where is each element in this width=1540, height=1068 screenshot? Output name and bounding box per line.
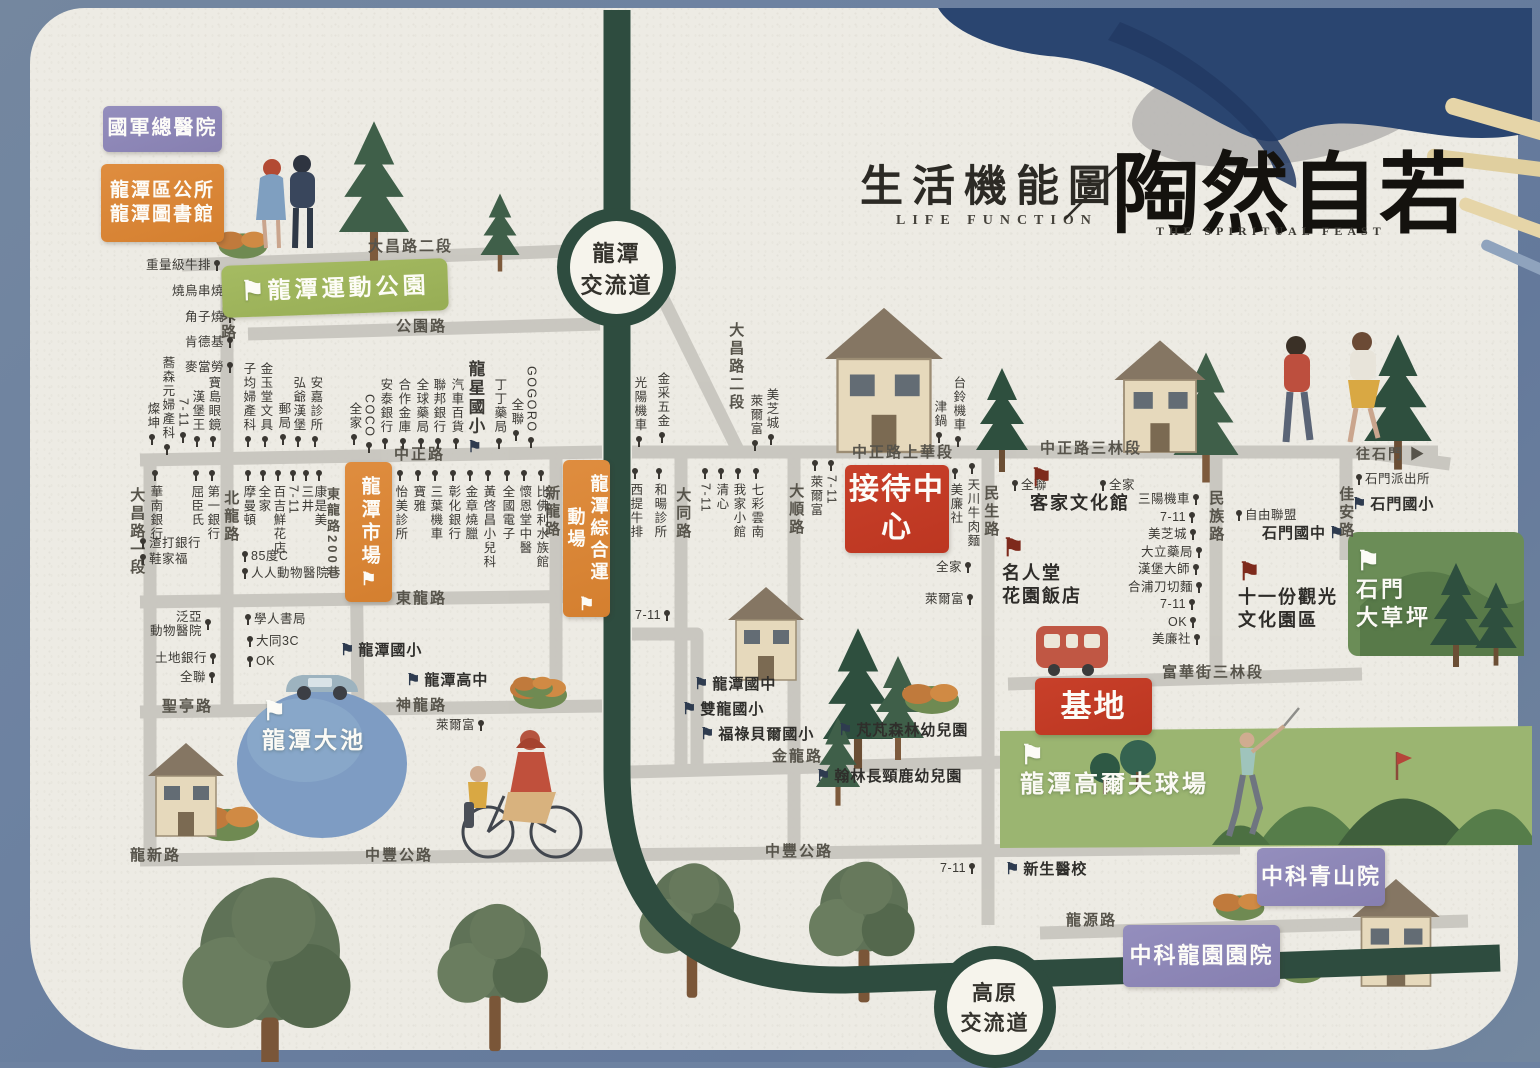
pin-icon [152,470,158,476]
poi-label: OK [1168,615,1196,629]
label-text: 7-11 [698,483,712,513]
label-text: OK [256,654,275,668]
label-text: 漢堡大師 [1138,562,1190,576]
landmark-shiyifen-culture-park: ⚑十一份觀光文化園區 [1238,560,1338,633]
flag-icon: ⚑ [1020,742,1047,769]
label-text: 肯德基 [185,335,224,349]
poi-label: 渣打銀行 [140,536,201,550]
label-text: 美廉社 [1152,632,1191,646]
label-text: 龍潭高中 [424,672,488,689]
poi-label: 汽車百貨 [449,378,463,449]
area-zhongke-longyuan: 中科龍園園院 [1123,925,1280,987]
pin-icon [351,434,357,440]
label-text: 民族路 [1207,490,1224,544]
label-text: 新生醫校 [1023,861,1087,878]
poi-label: 全家 [347,402,361,445]
label-text: 麥當勞 [185,360,224,374]
pin-icon [210,436,216,442]
pin-icon [214,260,220,266]
poi-label: 我家小館 [731,468,745,539]
label-text: 石門國中 [1262,525,1326,542]
label-text: 泛亞動物醫院 [150,610,202,639]
pin-icon [1189,512,1195,518]
label-text: 北龍路 [222,490,239,544]
label-text: 金采五金 [655,372,669,428]
label-text: 龍潭區公所龍潭圖書館 [110,179,215,228]
poi-label: 寶雅 [411,470,425,513]
pin-icon [753,468,759,474]
road-label-datong-rd: 大同路 [674,487,691,541]
pin-icon [164,444,170,450]
landmark-hakka-culture-hall: ⚑客家文化館 [1030,466,1130,515]
landmark-shimen-lawn: ⚑石門大草坪 [1356,548,1431,631]
label-text: 寶雅 [411,485,425,513]
pin-icon [397,470,403,476]
pin-icon [149,434,155,440]
poi-label: 金章燒臘 [463,470,477,541]
label-text: 芃芃森林幼兒園 [856,722,968,739]
area-armed-forces-hospital: 國軍總醫院 [103,106,222,152]
poi-label: 美廉社 [1152,632,1200,646]
label-text: 全球藥局 [414,378,428,434]
pin-icon [1356,474,1362,480]
pin-icon [242,568,248,574]
poi-label: 康是美 [312,470,326,527]
pin-icon [193,470,199,476]
poi-label: 華南銀行 [148,470,162,541]
pin-icon [227,337,233,343]
label-text: 全家 [936,560,962,574]
label-text: 名人堂花園飯店 [1002,562,1082,609]
pin-icon [1190,529,1196,535]
pin-icon [245,436,251,442]
poi-label: 三陽機車 [1138,492,1199,506]
poi-label: 全聯 [509,398,523,441]
pin-icon [485,470,491,476]
poi-label: 金玉堂文具 [258,362,272,447]
label-text: 西提牛排 [628,483,642,539]
school-xinsheng-medical: ⚑新生醫校 [1005,861,1087,878]
poi-label: 美廉社 [948,468,962,525]
road-label-zhongfeng-hwy-w: 中豐公路 [365,847,433,864]
label-text: 國軍總醫院 [108,116,218,142]
label-text: 台鈴機車 [951,376,965,432]
flag-icon: ⚑ [1329,526,1344,542]
label-text: 安泰銀行 [378,378,392,434]
poi-label: 7-11 [698,468,712,513]
poi-label: 學人書局 [245,612,306,626]
landmark-fame-hall-garden-hotel: ⚑名人堂花園飯店 [1002,536,1082,609]
pin-icon [1189,599,1195,605]
label-text: 全聯 [180,670,206,684]
poi-label: 彰化銀行 [446,470,460,541]
label-text: 大同路 [674,487,691,541]
poi-label: 安嘉診所 [308,376,322,447]
pin-icon [636,436,642,442]
label-text: 合作金庫 [396,378,410,434]
direction-shimen: 往石門 ▶ [1356,446,1426,462]
pin-icon [453,438,459,444]
label-text: 汽車百貨 [449,378,463,434]
label-text: 清心 [714,483,728,511]
label-text: 子均婦產科 [241,362,255,432]
road-label-longyuan-rd: 龍源路 [1066,912,1117,929]
road-label-dashun-rd: 大順路 [787,483,804,537]
area-project-site: 基地 [1035,678,1152,735]
poi-label: 清心 [714,468,728,511]
poi-label: 丁丁藥局 [492,378,506,449]
poi-label: 7-11 [635,608,670,622]
poi-label: 自由聯盟 [1236,508,1297,522]
label-text: 屈臣氏 [189,485,203,527]
label-text: 全家 [347,402,361,430]
pin-icon [245,614,251,620]
landmark-longtan-lake: ⚑龍潭大池 [262,698,366,755]
pin-icon [1196,547,1202,553]
label-text: 龍潭運動公園 [267,271,430,303]
label-text: 龍潭綜合運動場 [563,464,609,593]
pin-icon [290,470,296,476]
poi-label: 西提牛排 [628,468,642,539]
label-text: 合浦刀切麵 [1128,580,1193,594]
pin-icon [768,434,774,440]
road-label-beilong-rd: 北龍路 [222,490,239,544]
pin-icon [1012,480,1018,486]
flag-icon: ⚑ [467,440,481,456]
label-text: 學人書局 [254,612,306,626]
flag-icon: ⚑ [700,727,715,743]
pin-icon [382,438,388,444]
label-text: 蕎森元婦產科 [160,356,174,440]
poi-label: 泛亞動物醫院 [150,610,211,639]
road-label-donglong-rd: 東龍路 [396,590,447,607]
poi-label: 七彩雲南 [749,468,763,539]
poi-label: 合浦刀切麵 [1128,580,1202,594]
label-text: 全國電子 [500,485,514,541]
pin-icon [209,470,215,476]
poi-label: 7-11 [1160,510,1195,524]
label-text: 大同3C [256,634,299,648]
poi-label: 萊爾富 [436,718,484,732]
road-label-zhongfeng-hwy-e: 中豐公路 [765,843,833,860]
flag-icon: ⚑ [1352,497,1367,513]
poi-label: 光陽機車 [632,376,646,447]
road-label-minzu-rd: 民族路 [1207,490,1224,544]
flag-icon: ⚑ [578,595,594,613]
label-text: 石門國小 [1370,496,1434,513]
poi-label: 鞋家福 [140,552,188,566]
label-text: 雙龍國小 [700,701,764,718]
poi-label: 黃啓昌小兒科 [481,470,495,569]
label-text: 龍潭國小 [358,642,422,659]
pin-icon [180,432,186,438]
label-text: 東龍路 [396,590,447,607]
label-text: 金龍路 [772,748,823,765]
label-text: 富華街三林段 [1162,664,1264,681]
school-froebel-elementary: ⚑福祿貝爾國小 [700,726,814,743]
area-longtan-sports-park: ⚑龍潭運動公園 [221,258,449,318]
label-text: 燦坤 [145,402,159,430]
school-longtan-elementary: ⚑龍潭國小 [340,642,422,659]
flag-icon: ⚑ [682,702,697,718]
poi-label: 比佛利水族館 [534,470,548,569]
poi-label: COCO [362,394,376,453]
poi-label: 7-11 [1160,597,1195,611]
poi-label: 子均婦產科 [241,362,255,447]
pin-icon [242,551,248,557]
poi-label: 津鍋 [932,400,946,443]
flag-icon: ⚑ [240,277,265,305]
pin-icon [504,470,510,476]
label-text: 中正路上華段 [852,444,954,461]
school-shimen-elementary: ⚑石門國小 [1352,496,1434,513]
label-text: 民生路 [982,485,999,539]
label-text: 7-11 [940,861,966,875]
pin-icon [656,468,662,474]
label-text: 中豐公路 [365,847,433,864]
road-label-gongyuan-rd: 公園路 [396,318,447,335]
pin-icon [247,636,253,642]
label-text: 中豐公路 [765,843,833,860]
pin-icon [969,863,975,869]
poi-label: 全國電子 [500,470,514,541]
poi-label: 安泰銀行 [378,378,392,449]
pin-icon [303,470,309,476]
label-text: 丁丁藥局 [492,378,506,434]
label-text: 聖亭路 [162,698,213,715]
label-text: 7-11 [635,608,661,622]
poi-label: 全家 [936,560,971,574]
pin-icon [1190,617,1196,623]
pin-icon [227,362,233,368]
road-label-shengting-rd: 聖亭路 [162,698,213,715]
label-text: 中科青山院 [1261,863,1381,891]
flag-icon: ⚑ [360,570,376,588]
brand-logo-en: THE SPIRITUAL FEAST [1156,224,1386,239]
label-text: 7-11 [1160,597,1186,611]
label-text: 天川牛肉麵 [965,478,979,548]
label-text: 翰林長頸鹿幼兒園 [834,768,962,785]
area-reception-center: 接待中心 [845,465,949,553]
label-text: 福祿貝爾國小 [718,726,814,743]
pin-icon [400,438,406,444]
label-text: 龍星國小 [465,360,484,436]
area-longtan-market: 龍潭市場⚑ [345,462,392,602]
poi-label: 全家 [256,470,270,513]
label-text: 美芝城 [764,388,778,430]
pin-icon [735,468,741,474]
label-text: 人人動物醫院 [251,566,329,580]
pin-icon [295,436,301,442]
pin-icon [955,436,961,442]
poi-label: 重量級牛排 [146,258,220,272]
label-text: 第一銀行 [205,485,219,541]
label-text: 百吉鮮花店 [271,485,285,555]
label-text: 大昌路二段 [368,238,453,255]
flag-icon: ⚑ [1238,560,1262,585]
label-text: 萊爾富 [748,394,762,436]
flag-icon: ⚑ [838,723,853,739]
poi-label: 三葉機車 [428,470,442,541]
label-text: COCO [362,394,376,438]
label-text: 中科龍園園院 [1129,942,1273,970]
flag-icon: ⚑ [406,673,421,689]
pin-icon [432,470,438,476]
label-text: 黃啓昌小兒科 [481,485,495,569]
flag-icon: ⚑ [816,769,831,785]
poi-label: 天川牛肉麵 [965,463,979,548]
poi-label: 怡美診所 [393,470,407,541]
pin-icon [969,463,975,469]
pin-icon [952,468,958,474]
poi-label: 美芝城 [764,388,778,445]
pin-icon [262,436,268,442]
flag-icon: ⚑ [1002,536,1026,561]
label-text: 85度C [251,549,288,563]
label-text: OK [1168,615,1187,629]
pin-icon [1196,582,1202,588]
poi-label: 7-11 [940,861,975,875]
label-text: 龍新路 [130,847,181,864]
road-label-dachang-rd-sec2: 大昌路二段 [368,238,453,255]
pin-icon [316,470,322,476]
pin-icon [521,470,527,476]
label-text: 津鍋 [932,400,946,428]
label-text: 燒鳥串燒 [172,284,224,298]
poi-label: 金采五金 [655,372,669,443]
label-text: 全家 [256,485,270,513]
label-text: 全聯 [509,398,523,426]
pin-icon [140,538,146,544]
label-text: 重量級牛排 [146,258,211,272]
road-label-zhongzheng-shanghua: 中正路上華段 [852,444,954,461]
pin-icon [415,470,421,476]
pin-icon [967,594,973,600]
label-text: 角子燒 [185,310,224,324]
school-longtan-junior-high: ⚑龍潭國中 [694,676,776,693]
label-text: 寶島眼鏡 [206,376,220,432]
label-text: 龍潭高爾夫球場 [1020,770,1209,800]
poi-label: 屈臣氏 [189,470,203,527]
area-district-office-library: 龍潭區公所龍潭圖書館 [101,164,224,242]
label-text: 自由聯盟 [1245,508,1297,522]
pin-icon [1193,564,1199,570]
poi-label: 美芝城 [1148,527,1196,541]
pin-icon [210,653,216,659]
label-text: 石門大草坪 [1356,576,1431,631]
pin-icon [828,460,834,466]
pin-icon [1194,634,1200,640]
label-text: 萊爾富 [436,718,475,732]
pin-icon [312,436,318,442]
pin-icon [513,430,519,436]
poi-label: 萊爾富 [748,394,762,451]
pin-icon [632,468,638,474]
poi-label: 肯德基 [185,335,233,349]
pin-icon [538,470,544,476]
pin-icon [664,610,670,616]
poi-label: 萊爾富 [808,460,822,517]
label-text: 摩曼頓 [241,485,255,527]
label-text: 安嘉診所 [308,376,322,432]
poi-shimen-police: 石門派出所 [1356,472,1430,486]
label-text: 聯邦銀行 [431,378,445,434]
road-label-fuhua-st: 富華街三林段 [1162,664,1264,681]
road-label-longxin-rd: 龍新路 [130,847,181,864]
label-text: 7-11 [176,398,190,428]
label-text: 十一份觀光文化園區 [1238,586,1338,633]
pin-icon [209,672,215,678]
poi-label: 弘爺漢堡 [291,376,305,447]
poi-label: 土地銀行 [155,651,216,665]
label-text: 龍潭市場 [356,476,380,568]
pin-icon [1193,494,1199,500]
poi-label: 百吉鮮花店 [271,470,285,555]
poi-label: 全聯 [180,670,215,684]
flag-icon: ⚑ [340,643,355,659]
label-text: 華南銀行 [148,485,162,541]
label-text: 大順路 [787,483,804,537]
label-text: 7-11 [1160,510,1186,524]
label-text: 我家小館 [731,483,745,539]
poi-label: 和暘診所 [652,468,666,539]
pin-icon [478,720,484,726]
pin-icon [1236,510,1242,516]
label-text: 土地銀行 [155,651,207,665]
pin-icon [245,470,251,476]
label-text: GOGORO [524,366,538,433]
school-longtan-high: ⚑龍潭高中 [406,672,488,689]
poi-label: 懷恩堂中醫 [517,470,531,555]
poi-label: 大同3C [247,634,299,648]
label-text: 往石門 ▶ [1356,446,1426,462]
road-label-zhongzheng-sanlin: 中正路三林段 [1040,440,1142,457]
label-text: 彰化銀行 [446,485,460,541]
road-label-minsheng-rd: 民生路 [982,485,999,539]
poi-label: 聯邦銀行 [431,378,445,449]
school-hanlin-kindergarten: ⚑翰林長頸鹿幼兒園 [816,768,962,785]
poi-label: 郵局 [276,402,290,445]
label-text: 客家文化館 [1030,492,1130,515]
poi-label: 85度C [242,549,288,563]
label-text: 七彩雲南 [749,483,763,539]
poi-label: 摩曼頓 [241,470,255,527]
pin-icon [280,434,286,440]
label-text: 美芝城 [1148,527,1187,541]
pin-icon [450,470,456,476]
poi-label: 漢堡大師 [1138,562,1199,576]
poi-label: 7-11 [824,460,838,505]
poi-label: 漢堡王 [190,390,204,447]
label-text: 龍潭大池 [262,726,366,755]
label-text: 怡美診所 [393,485,407,541]
label-text: 大昌路二段 [727,322,744,412]
pin-icon [205,619,211,625]
pin-icon [247,656,253,662]
label-text: 康是美 [312,485,326,527]
pin-icon [275,470,281,476]
label-text: 三陽機車 [1138,492,1190,506]
road-label-dachang-rd-sec2-s: 大昌路二段 [727,322,744,412]
label-text: 懷恩堂中醫 [517,485,531,555]
pin-icon [496,438,502,444]
pin-icon [418,438,424,444]
area-longtan-sports-ground: 龍潭綜合運動場⚑ [563,460,610,617]
flag-icon: ⚑ [262,698,289,725]
label-text: 漢堡王 [190,390,204,432]
label-text: 萊爾富 [808,475,822,517]
label-text: 接待中心 [849,471,945,548]
